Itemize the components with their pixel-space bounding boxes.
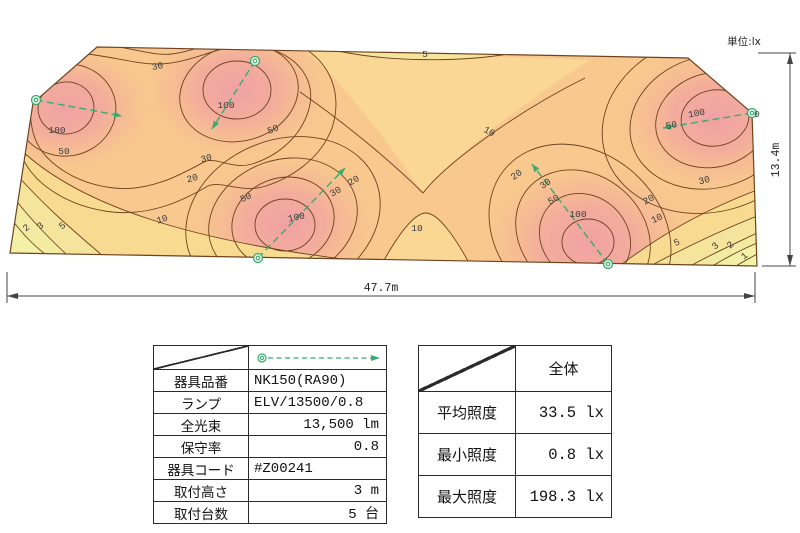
table-row: 取付高さ3 m xyxy=(154,479,386,501)
luminaire-position-icon xyxy=(254,254,263,263)
row-value: NK150(RA90) xyxy=(248,369,386,391)
table-row: 器具コード#Z00241 xyxy=(154,457,386,479)
height-dimension-label: 13.4m xyxy=(770,143,783,178)
contour-label: 5 xyxy=(422,49,428,60)
row-value: #Z00241 xyxy=(248,457,386,479)
luminaire-symbol-icon xyxy=(255,351,381,365)
row-value: 3 m xyxy=(248,479,386,501)
luminaire-symbol-legend xyxy=(248,346,386,369)
row-label: 全光束 xyxy=(154,413,248,435)
illuminance-results-table: 全体平均照度33.5 lx最小照度0.8 lx最大照度198.3 lx xyxy=(418,345,612,518)
row-value: 5 台 xyxy=(248,501,386,523)
table-row xyxy=(154,346,386,369)
row-value: 33.5 lx xyxy=(515,391,611,433)
row-value: 13,500 lm xyxy=(248,413,386,435)
contour-label: 0 xyxy=(754,109,760,120)
table-row: 平均照度33.5 lx xyxy=(419,391,611,433)
contour-label: 100 xyxy=(569,209,586,220)
table-header-diagonal xyxy=(154,346,248,369)
table-row: 最大照度198.3 lx xyxy=(419,475,611,517)
results-scope-header: 全体 xyxy=(515,346,611,391)
row-label: 取付台数 xyxy=(154,501,248,523)
table-header-diagonal xyxy=(419,346,515,391)
row-value: 198.3 lx xyxy=(515,475,611,517)
table-row: 取付台数5 台 xyxy=(154,501,386,523)
row-label: ランプ xyxy=(154,391,248,413)
table-row: 全光束13,500 lm xyxy=(154,413,386,435)
unit-label: 単位:lx xyxy=(727,35,761,48)
contour-label: 50 xyxy=(58,146,70,157)
illuminance-report-page: { "unit_label": "単位:lx", "dimensions": {… xyxy=(0,0,800,533)
row-label: 取付高さ xyxy=(154,479,248,501)
table-row: 最小照度0.8 lx xyxy=(419,433,611,475)
luminaire-position-icon xyxy=(251,57,260,66)
contour-map: 47.7m 13.4m 単位:lx 3051010050100503020102… xyxy=(0,0,800,335)
row-value: 0.8 xyxy=(248,435,386,457)
width-dimension-label: 47.7m xyxy=(364,282,399,295)
table-row: 保守率0.8 xyxy=(154,435,386,457)
fixture-spec-table: 器具品番NK150(RA90)ランプELV/13500/0.8全光束13,500… xyxy=(153,345,387,524)
contour-label: 10 xyxy=(411,223,423,234)
row-label: 平均照度 xyxy=(419,391,515,433)
row-label: 器具品番 xyxy=(154,369,248,391)
row-label: 保守率 xyxy=(154,435,248,457)
contour-label: 30 xyxy=(151,60,164,73)
table-row: ランプELV/13500/0.8 xyxy=(154,391,386,413)
row-label: 最小照度 xyxy=(419,433,515,475)
table-row: 全体 xyxy=(419,346,611,391)
row-label: 最大照度 xyxy=(419,475,515,517)
row-label: 器具コード xyxy=(154,457,248,479)
contour-label: 100 xyxy=(48,125,65,136)
row-value: 0.8 lx xyxy=(515,433,611,475)
row-value: ELV/13500/0.8 xyxy=(248,391,386,413)
luminaire-position-icon xyxy=(32,96,41,105)
luminaire-position-icon xyxy=(604,260,613,269)
table-row: 器具品番NK150(RA90) xyxy=(154,369,386,391)
contour-label: 100 xyxy=(217,100,234,111)
